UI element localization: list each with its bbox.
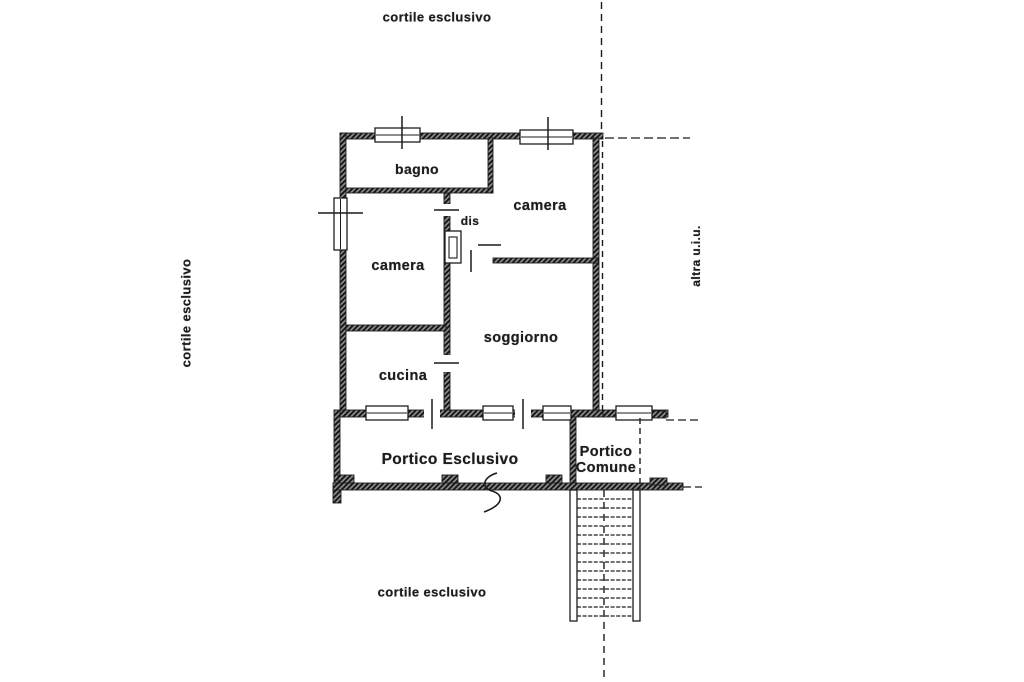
wall-right	[593, 138, 599, 417]
room-label-portico-esclusivo: Portico Esclusivo	[382, 451, 519, 469]
room-label-camera-right: camera	[513, 198, 566, 214]
room-label-portico-comune-line2: Comune	[576, 460, 636, 476]
wall-bagno-bottom	[346, 188, 493, 193]
pillar-3	[546, 475, 562, 483]
pillar-4	[650, 478, 667, 485]
wall-bagno-camera	[488, 138, 493, 193]
room-label-portico-comune-line1: Portico	[576, 444, 636, 460]
stairs-rail-left	[570, 490, 577, 621]
room-label-soggiorno: soggiorno	[484, 330, 558, 346]
room-label-dis: dis	[461, 214, 480, 228]
stairs-rail-right	[633, 490, 640, 621]
wall-camera-right-bottom	[493, 258, 598, 263]
courtyard-label-top: cortile esclusivo	[383, 10, 492, 25]
floor-plan-page: cortile esclusivo cortile esclusivo altr…	[0, 0, 1024, 682]
courtyard-label-left: cortile esclusivo	[179, 259, 194, 368]
pillar-2	[442, 475, 458, 483]
room-label-camera-left: camera	[371, 258, 424, 274]
boundary-dashed-lines	[602, 2, 703, 680]
adjacent-unit-label: altra u.i.u.	[689, 225, 703, 286]
walls	[333, 133, 683, 490]
room-label-cucina: cucina	[379, 368, 427, 384]
doors	[424, 204, 531, 429]
stairs-icon	[570, 490, 640, 621]
wall-central-a	[444, 193, 450, 204]
room-label-bagno: bagno	[395, 161, 439, 177]
courtyard-label-bottom: cortile esclusivo	[378, 585, 487, 600]
wall-left	[340, 133, 346, 417]
s-curve-symbol	[484, 473, 500, 512]
nub-bottom-left	[333, 490, 341, 503]
wall-central-c	[444, 372, 450, 410]
wall-portico-bottom	[333, 483, 683, 490]
wall-camera-cucina	[346, 325, 446, 331]
stairs-treads	[577, 499, 633, 616]
pillar-1	[338, 475, 354, 483]
room-label-portico-comune: Portico Comune	[576, 444, 636, 476]
